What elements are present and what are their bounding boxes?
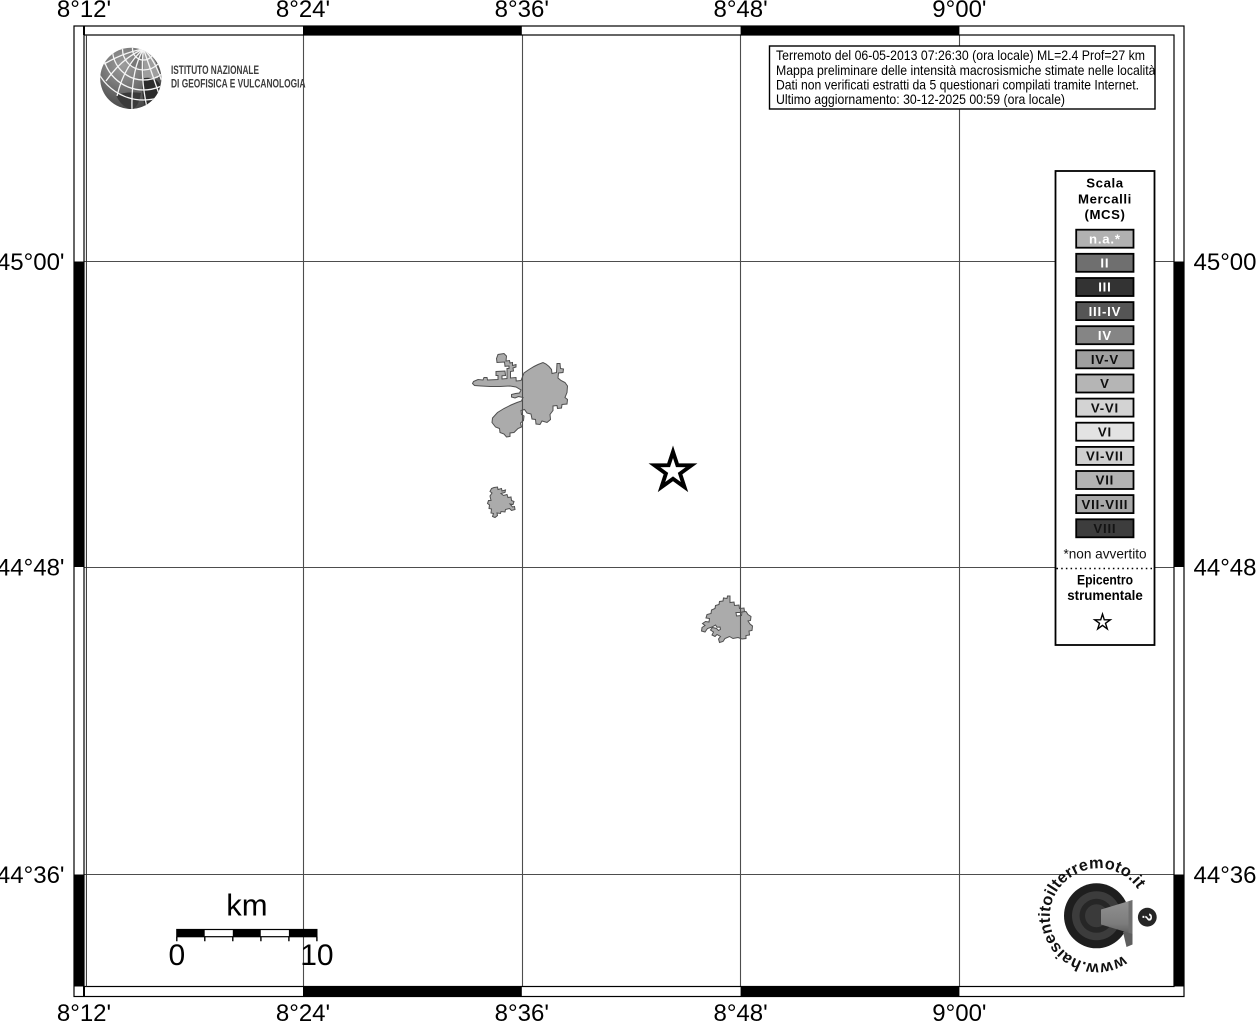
svg-text:DI GEOFISICA E VULCANOLOGIA: DI GEOFISICA E VULCANOLOGIA [171, 77, 306, 90]
svg-text:Ultimo aggiornamento: 30-12-20: Ultimo aggiornamento: 30-12-2025 00:59 (… [776, 92, 1065, 107]
svg-text:VI: VI [1098, 424, 1112, 439]
svg-text:*non avvertito: *non avvertito [1063, 547, 1146, 562]
svg-text:8°48': 8°48' [713, 1000, 767, 1024]
svg-text:45°00': 45°00' [1194, 249, 1257, 276]
svg-text:10: 10 [300, 939, 333, 972]
svg-text:III-IV: III-IV [1089, 304, 1122, 319]
svg-text:VII: VII [1096, 473, 1115, 488]
svg-text:Scala: Scala [1086, 176, 1124, 191]
svg-text:Terremoto del 06-05-2013 07:26: Terremoto del 06-05-2013 07:26:30 (ora l… [776, 48, 1145, 63]
svg-text:8°24': 8°24' [276, 0, 330, 23]
svg-text:9°00': 9°00' [932, 1000, 986, 1024]
svg-text:Mercalli: Mercalli [1078, 192, 1132, 207]
svg-text:44°48': 44°48' [1194, 555, 1257, 582]
svg-text:strumentale: strumentale [1067, 588, 1143, 603]
svg-text:VI-VII: VI-VII [1086, 449, 1124, 464]
svg-text:44°48': 44°48' [0, 555, 65, 582]
svg-text:V: V [1100, 376, 1110, 391]
svg-text:Mappa preliminare delle intens: Mappa preliminare delle intensità macros… [776, 63, 1156, 78]
svg-text:km: km [226, 888, 267, 923]
svg-text:VII-VIII: VII-VIII [1082, 497, 1129, 512]
svg-text:8°12': 8°12' [57, 1000, 111, 1024]
svg-text:II: II [1100, 256, 1109, 271]
svg-text:45°00': 45°00' [0, 249, 65, 276]
svg-text:9°00': 9°00' [932, 0, 986, 23]
svg-text:n.a.*: n.a.* [1089, 231, 1121, 246]
svg-text:8°48': 8°48' [713, 0, 767, 23]
svg-text:ISTITUTO NAZIONALE: ISTITUTO NAZIONALE [171, 64, 259, 77]
svg-text:8°36': 8°36' [495, 1000, 549, 1024]
svg-text:Dati non verificati estratti d: Dati non verificati estratti da 5 questi… [776, 78, 1139, 93]
svg-text:0: 0 [168, 939, 185, 972]
svg-text:(MCS): (MCS) [1084, 207, 1125, 222]
svg-text:44°36': 44°36' [0, 862, 65, 889]
svg-text:IV: IV [1098, 328, 1112, 343]
svg-text:8°36': 8°36' [495, 0, 549, 23]
svg-text:8°24': 8°24' [276, 1000, 330, 1024]
svg-text:44°36': 44°36' [1194, 862, 1257, 889]
svg-text:V-VI: V-VI [1091, 400, 1119, 415]
svg-text:VIII: VIII [1093, 521, 1116, 536]
svg-text:IV-V: IV-V [1091, 352, 1119, 367]
svg-text:Epicentro: Epicentro [1077, 573, 1133, 588]
svg-text:8°12': 8°12' [57, 0, 111, 23]
svg-text:?: ? [1139, 913, 1155, 922]
svg-text:III: III [1098, 280, 1111, 295]
